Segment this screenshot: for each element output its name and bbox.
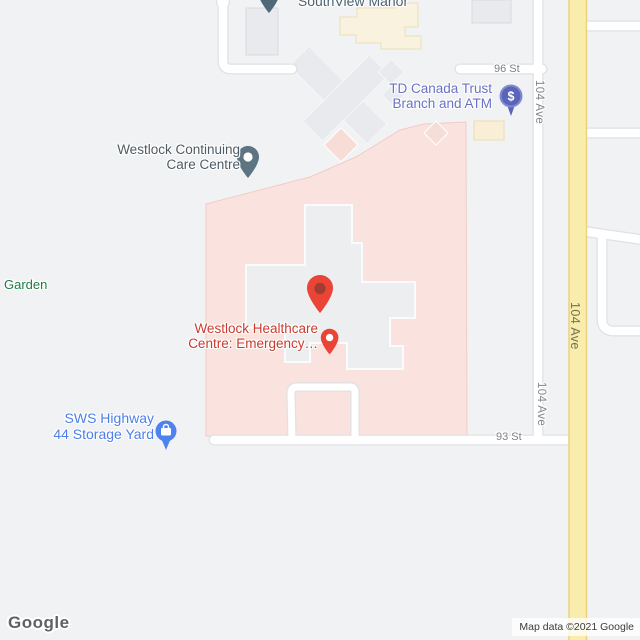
map-data-attribution: Map data ©2021 Google	[512, 618, 640, 636]
label-sws-storage[interactable]: SWS Highway 44 Storage Yard	[48, 411, 154, 442]
street-label-93-st: 93 St	[496, 431, 522, 443]
google-logo[interactable]: Google	[8, 613, 70, 633]
sws-storage-pin[interactable]	[156, 421, 177, 451]
label-line: TD Canada Trust	[380, 81, 492, 96]
label-westlock-continuing-care[interactable]: Westlock Continuing Care Centre	[98, 142, 240, 172]
street-label-104-ave-lower: 104 Ave	[535, 382, 547, 426]
label-td-canada-trust[interactable]: TD Canada Trust Branch and ATM	[380, 81, 492, 111]
td-bank-pin[interactable]: $	[501, 86, 522, 117]
label-line: Westlock Healthcare	[177, 321, 318, 336]
label-line: Centre: Emergency…	[177, 336, 318, 351]
street-label-96-st: 96 St	[494, 63, 520, 75]
street-label-104-ave-highway: 104 Ave	[568, 302, 582, 350]
label-line: Westlock Continuing	[98, 142, 240, 157]
label-southview-manor[interactable]: SouthView Manor	[283, 0, 423, 9]
label-line: SWS Highway	[48, 411, 154, 427]
dollar-icon: $	[508, 90, 515, 104]
td-bank-building	[474, 121, 504, 140]
label-line: 44 Storage Yard	[48, 427, 154, 443]
street-label-104-ave-upper: 104 Ave	[533, 80, 545, 124]
southview-manor-building	[340, 3, 421, 49]
continuing-care-pin[interactable]	[237, 146, 259, 178]
map-canvas[interactable]: $ SouthView Manor TD Canada Trust Branch…	[0, 0, 640, 640]
label-line: Branch and ATM	[380, 96, 492, 111]
label-line: Care Centre	[98, 157, 240, 172]
label-westlock-healthcare[interactable]: Westlock Healthcare Centre: Emergency…	[177, 321, 318, 351]
label-garden: Garden	[4, 277, 47, 292]
